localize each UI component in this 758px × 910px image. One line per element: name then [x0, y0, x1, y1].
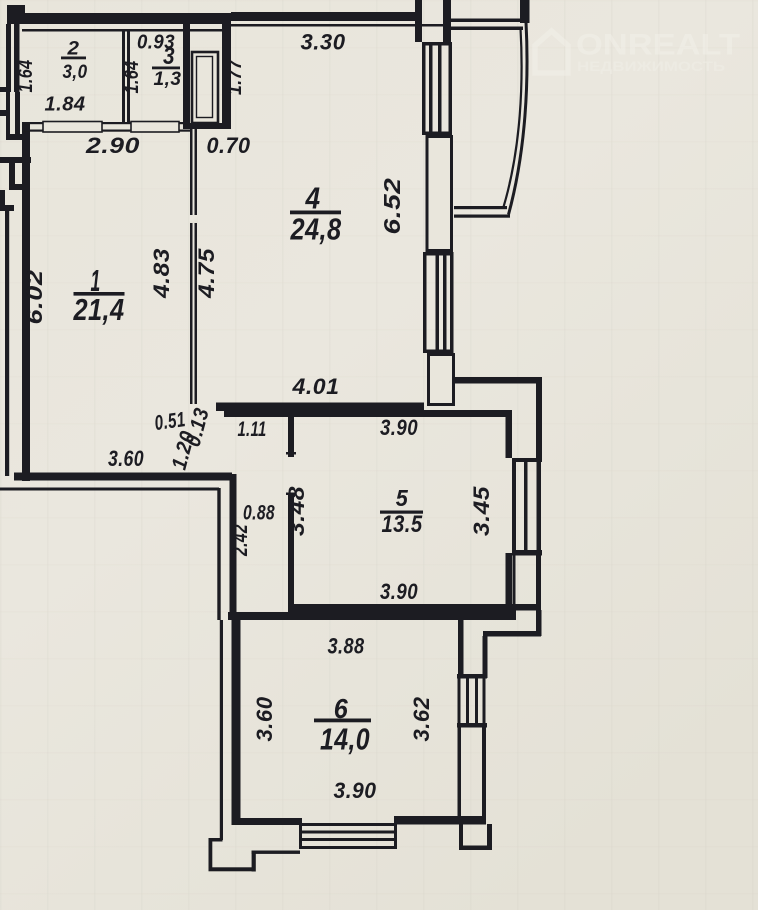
- svg-text:4.01: 4.01: [291, 374, 339, 399]
- svg-text:3.90: 3.90: [380, 579, 418, 604]
- svg-text:13.5: 13.5: [382, 511, 423, 538]
- svg-text:4.83: 4.83: [149, 248, 174, 299]
- svg-text:3.90: 3.90: [380, 415, 418, 440]
- svg-text:0.70: 0.70: [207, 133, 251, 158]
- svg-text:3.30: 3.30: [301, 30, 346, 55]
- svg-text:2.90: 2.90: [85, 133, 141, 158]
- svg-text:3.45: 3.45: [469, 486, 494, 536]
- svg-text:1.84: 1.84: [45, 94, 86, 116]
- svg-text:3: 3: [163, 43, 175, 70]
- svg-text:3.60: 3.60: [252, 696, 277, 741]
- svg-text:6.52: 6.52: [379, 178, 405, 235]
- svg-text:1.77: 1.77: [224, 59, 246, 95]
- svg-text:24,8: 24,8: [290, 212, 342, 247]
- svg-text:НЕДВИЖИМОСТЬ: НЕДВИЖИМОСТЬ: [577, 59, 725, 74]
- svg-text:1.64: 1.64: [15, 60, 37, 93]
- svg-text:5: 5: [396, 485, 409, 511]
- svg-text:3.90: 3.90: [334, 778, 377, 803]
- svg-text:4: 4: [305, 181, 321, 216]
- svg-text:3,0: 3,0: [63, 62, 88, 83]
- svg-text:2.42: 2.42: [229, 524, 252, 557]
- svg-text:3.60: 3.60: [108, 446, 144, 471]
- svg-text:21,4: 21,4: [73, 292, 125, 327]
- svg-text:3.48: 3.48: [284, 486, 309, 536]
- svg-text:0.88: 0.88: [243, 502, 275, 525]
- svg-text:3.88: 3.88: [328, 634, 365, 659]
- svg-text:4.75: 4.75: [194, 248, 219, 299]
- svg-text:6.02: 6.02: [22, 269, 47, 324]
- svg-text:1.11: 1.11: [238, 418, 267, 441]
- svg-text:14,0: 14,0: [320, 722, 370, 757]
- svg-text:ONREALT: ONREALT: [576, 29, 740, 62]
- svg-text:3.62: 3.62: [409, 696, 434, 741]
- svg-text:2: 2: [66, 39, 79, 60]
- svg-text:1.64: 1.64: [121, 61, 143, 94]
- svg-text:1,3: 1,3: [154, 69, 182, 90]
